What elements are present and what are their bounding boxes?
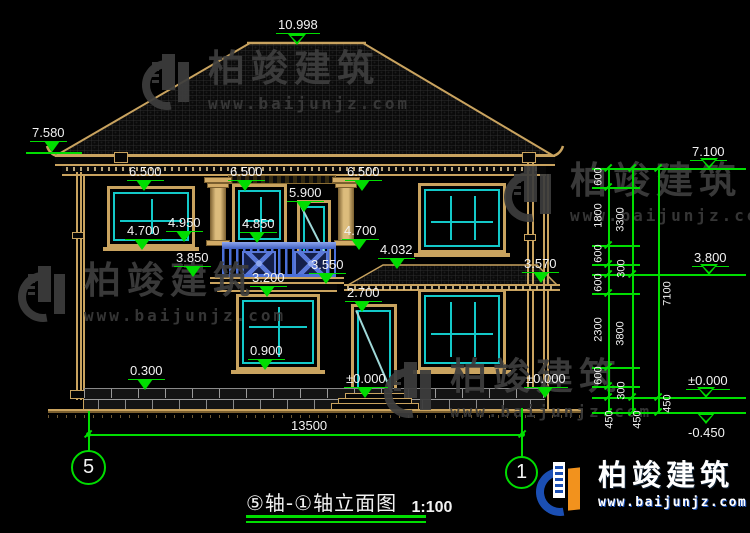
column-left-shaft	[210, 188, 226, 240]
level-6500-1-marker	[136, 180, 152, 191]
overall-dim-label: 13500	[291, 419, 327, 432]
window-2f-right	[418, 183, 506, 253]
axis-number-1: 1	[516, 461, 527, 484]
level-2700-marker	[354, 301, 370, 312]
level-ridge-marker	[288, 34, 306, 45]
watermark-left: 柏竣建筑 www.baijunjz.com	[18, 262, 286, 328]
level-ground-right: -0.450	[688, 426, 725, 439]
dim-node	[520, 432, 525, 437]
watermark-top: 柏竣建筑 www.baijunjz.com	[142, 50, 410, 116]
level-6500-2: 6.500	[228, 165, 265, 181]
dim-a-300-1: 300	[617, 247, 628, 291]
axis-bubble-1: 1	[505, 456, 538, 489]
level-4700-right: 4.700	[342, 224, 379, 240]
level-3850: 3.850	[174, 251, 211, 267]
footer-brand-text: 柏竣建筑	[598, 460, 747, 492]
downspout-right-bracket	[524, 234, 536, 241]
level-ridge: 10.998	[276, 18, 320, 34]
dim-node	[86, 432, 91, 437]
watermark-logo-icon	[504, 162, 560, 228]
level-4700-left: 4.700	[125, 224, 162, 240]
balcony-railing-top-rail	[222, 242, 336, 249]
downspout-left-bracket	[72, 232, 84, 239]
dim-a-2300: 2300	[594, 308, 605, 352]
dim-a-600-1: 600	[594, 155, 605, 199]
watermark-right: 柏竣建筑 www.baijunjz.com	[504, 162, 750, 228]
level-zero-wall: ±0.000	[524, 372, 568, 388]
dim-a-600-4: 600	[594, 354, 605, 398]
level-4850-marker	[249, 232, 265, 243]
dim-b-450: 450	[633, 398, 644, 442]
window-mullion	[450, 196, 452, 240]
dim-a-450: 450	[605, 398, 616, 442]
dim-chain-c-line	[658, 168, 660, 414]
level-0300-marker	[137, 379, 153, 390]
level-4700-left-marker	[134, 239, 150, 250]
level-3570: 3.570	[522, 257, 559, 273]
dim-b-3800: 3800	[616, 312, 627, 356]
axis-bubble-5: 5	[71, 450, 106, 485]
level-4700-right-marker	[351, 239, 367, 250]
window-mullion	[474, 302, 476, 357]
level-eave-left: 7.580	[30, 126, 67, 142]
level-5900-marker	[296, 201, 312, 212]
level-6500-3-marker	[354, 180, 370, 191]
level-3550: 3.550	[309, 258, 346, 274]
level-3850-marker	[185, 266, 201, 277]
level-6500-2-marker	[237, 180, 253, 191]
level-6500-3: 6.500	[345, 165, 382, 181]
title-underline-thin	[246, 521, 426, 523]
dim-a-600-3: 600	[594, 261, 605, 305]
dim-c-7100: 7100	[663, 272, 674, 316]
watermark-brand-text: 柏竣建筑	[208, 50, 410, 89]
watermark-url-text: www.baijunjz.com	[84, 306, 286, 325]
window-mullion	[450, 302, 452, 357]
level-4032-marker	[389, 258, 405, 269]
dim-a-300-2: 300	[617, 369, 628, 413]
level-3570-marker	[533, 272, 549, 283]
ext-line-top	[592, 168, 746, 170]
axis-number-5: 5	[83, 456, 94, 479]
drawing-title-text: ⑤轴-①轴立面图	[246, 487, 397, 516]
footer-logo-icon	[536, 460, 590, 520]
window-mullion	[474, 196, 476, 240]
level-3200: 3.200	[250, 271, 287, 287]
level-zero-right-marker	[697, 387, 715, 398]
level-5900: 5.900	[287, 186, 324, 202]
title-underline-thick	[246, 515, 426, 518]
level-0900: 0.900	[248, 344, 285, 360]
level-4032: 4.032	[378, 243, 415, 259]
window-2f-right-sill	[414, 253, 510, 257]
level-3800-marker	[700, 264, 718, 275]
window-transom	[431, 333, 493, 335]
level-eave-left-marker	[44, 141, 60, 152]
dim-chain-b-line	[632, 168, 634, 414]
dim-c-450: 450	[663, 382, 674, 426]
level-6500-1: 6.500	[127, 165, 164, 181]
watermark-logo-icon	[18, 262, 74, 328]
level-4850: 4.850	[240, 217, 277, 233]
level-2700: 2.700	[345, 286, 382, 302]
gutter-box-left	[114, 152, 128, 163]
level-eave-left-line	[26, 152, 82, 154]
watermark-logo-icon	[142, 50, 198, 116]
drawing-title: ⑤轴-①轴立面图 1:100	[246, 487, 452, 517]
level-zero-door-marker	[357, 387, 373, 398]
level-eave-right-marker	[700, 158, 718, 169]
footer-url-text: www.baijunjz.com	[598, 495, 747, 510]
window-transom	[431, 221, 493, 223]
level-3200-marker	[259, 286, 275, 297]
window-1f-left-sill	[231, 370, 325, 374]
watermark-url-text: www.baijunjz.com	[208, 94, 410, 113]
level-4950-marker	[176, 231, 192, 242]
footer-logo: 柏竣建筑 www.baijunjz.com	[536, 460, 747, 520]
level-0300: 0.300	[128, 364, 165, 380]
window-1f-right-glass	[424, 295, 500, 364]
level-zero-wall-marker	[537, 387, 553, 398]
level-ground-right-marker	[697, 413, 715, 424]
watermark-logo-icon	[384, 358, 440, 424]
overall-dim-line	[88, 434, 522, 436]
level-zero-door: ±0.000	[344, 372, 388, 388]
level-0900-marker	[257, 359, 273, 370]
dim-b-3300: 3300	[616, 198, 627, 242]
window-2f-right-glass	[424, 189, 500, 247]
elevation-drawing-canvas: 柏竣建筑 www.baijunjz.com 柏竣建筑 www.baijunjz.…	[0, 0, 750, 533]
level-4950: 4.950	[166, 216, 203, 232]
level-3550-marker	[318, 273, 334, 284]
